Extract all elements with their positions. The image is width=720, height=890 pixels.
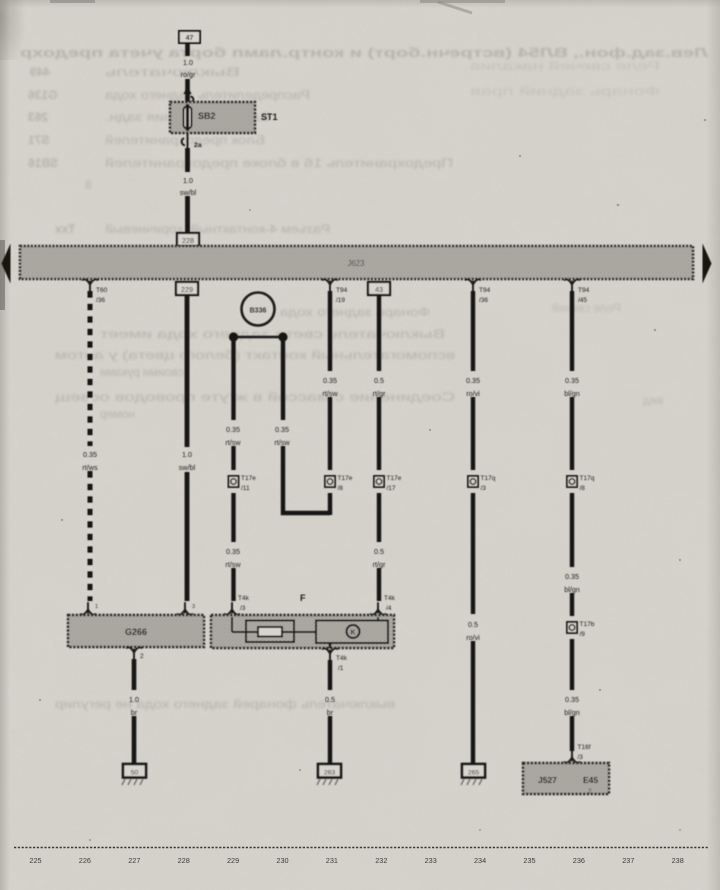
svg-text:T94: T94 — [578, 287, 590, 294]
svg-text:T17e: T17e — [387, 475, 402, 482]
svg-text:0.5: 0.5 — [374, 547, 384, 556]
svg-text:0.5: 0.5 — [468, 620, 478, 629]
svg-text:Предохранитель 16 в блоке пред: Предохранитель 16 в блоке предохранителе… — [105, 156, 453, 170]
svg-text:вспомогательный контакт (белог: вспомогательный контакт (белого цвета) у… — [55, 348, 455, 362]
svg-text:43: 43 — [375, 285, 383, 294]
svg-text:0.35: 0.35 — [226, 425, 240, 434]
svg-text:rt/gr: rt/gr — [373, 560, 386, 569]
svg-text:/36: /36 — [96, 297, 105, 304]
svg-text:50: 50 — [131, 770, 139, 777]
svg-text:/45: /45 — [578, 297, 587, 304]
svg-text:226: 226 — [79, 856, 91, 865]
svg-text:0.35: 0.35 — [466, 376, 480, 385]
svg-text:SB2: SB2 — [198, 111, 216, 121]
svg-text:T60: T60 — [96, 287, 108, 294]
svg-text:1.0: 1.0 — [182, 450, 192, 459]
svg-text:Реле свечей накалив: Реле свечей накалив — [470, 59, 660, 73]
svg-text:Выключатель: Выключатель — [105, 65, 240, 79]
svg-text:225: 225 — [29, 856, 41, 865]
svg-text:bl/gn: bl/gn — [564, 585, 580, 594]
svg-text:263: 263 — [324, 770, 336, 777]
svg-text:237: 237 — [622, 856, 634, 865]
svg-text:Распределитель заднего хода: Распределитель заднего хода — [105, 88, 310, 102]
svg-text:номер: номер — [100, 407, 135, 421]
svg-text:G136: G136 — [28, 88, 58, 102]
svg-text:J527: J527 — [538, 775, 557, 785]
svg-text:Соединение с массой в жгуте пр: Соединение с массой в жгуте проводов осв… — [55, 390, 455, 404]
svg-text:ro/vi: ro/vi — [466, 633, 480, 642]
svg-text:263: 263 — [28, 110, 48, 124]
svg-text:228: 228 — [178, 856, 190, 865]
svg-text:S71: S71 — [28, 133, 50, 147]
svg-text:своими руками: своими руками — [100, 365, 184, 379]
svg-text:rt/sw: rt/sw — [322, 389, 338, 398]
svg-text:ro/vi: ro/vi — [466, 389, 480, 398]
svg-text:T17e: T17e — [241, 475, 256, 482]
svg-text:229: 229 — [181, 285, 193, 294]
svg-text:229: 229 — [227, 856, 239, 865]
svg-text:47: 47 — [186, 35, 194, 42]
svg-text:/3: /3 — [240, 605, 246, 612]
svg-text:238: 238 — [672, 856, 684, 865]
svg-text:232: 232 — [375, 856, 387, 865]
svg-text:Фонарь задний прав: Фонарь задний прав — [470, 84, 660, 98]
svg-text:F: F — [300, 593, 306, 603]
svg-text:T94: T94 — [479, 287, 491, 294]
svg-text:0.35: 0.35 — [323, 376, 337, 385]
svg-text:265: 265 — [468, 770, 480, 777]
svg-text:T4k: T4k — [384, 595, 396, 602]
svg-text:T17q: T17q — [481, 475, 496, 482]
svg-text:ro/gr: ro/gr — [181, 70, 196, 79]
svg-text:449: 449 — [30, 65, 50, 79]
svg-text:/36: /36 — [479, 297, 488, 304]
svg-text:/17: /17 — [387, 485, 396, 492]
svg-text:0.35: 0.35 — [565, 572, 579, 581]
svg-text:0.5: 0.5 — [374, 376, 384, 385]
svg-text:/11: /11 — [241, 485, 250, 492]
svg-text:G266: G266 — [125, 627, 147, 637]
svg-text:1: 1 — [95, 604, 98, 610]
svg-text:/1: /1 — [338, 665, 344, 672]
svg-text:2a: 2a — [194, 142, 202, 149]
svg-text:rt/sw: rt/sw — [274, 438, 290, 447]
svg-text:Выключатель света заднего хода: Выключатель света заднего хода имеет — [99, 327, 445, 341]
svg-text:B336: B336 — [250, 308, 267, 315]
svg-text:227: 227 — [128, 856, 140, 865]
svg-text:T4k: T4k — [238, 595, 250, 602]
svg-text:0.35: 0.35 — [565, 695, 579, 704]
svg-text:2: 2 — [140, 653, 144, 660]
svg-text:T17b: T17b — [580, 621, 595, 628]
svg-text:0.35: 0.35 — [565, 376, 579, 385]
svg-text:rt/sw: rt/sw — [225, 560, 241, 569]
svg-text:Фонарь заднего хода: Фонарь заднего хода — [280, 305, 430, 319]
svg-text:T94: T94 — [336, 287, 348, 294]
svg-text:вид: вид — [643, 393, 663, 407]
svg-text:выключатель фонарей заднего хо: выключатель фонарей заднего хода не регу… — [55, 697, 395, 711]
svg-text:/3: /3 — [578, 754, 584, 761]
svg-text:/19: /19 — [336, 297, 345, 304]
svg-text:bl/gn: bl/gn — [564, 389, 580, 398]
svg-text:Лев.зад.фон., ВЛ54 (встречн.бо: Лев.зад.фон., ВЛ54 (встречн.борт) и конт… — [19, 46, 708, 60]
svg-text:/3: /3 — [481, 485, 487, 492]
svg-text:T17q: T17q — [580, 475, 595, 482]
svg-text:228: 228 — [182, 236, 194, 245]
svg-text:8: 8 — [85, 178, 92, 192]
svg-text:/8: /8 — [580, 485, 586, 492]
svg-text:3: 3 — [192, 604, 195, 610]
svg-text:K: K — [350, 630, 355, 637]
svg-text:236: 236 — [573, 856, 585, 865]
svg-text:230: 230 — [276, 856, 288, 865]
svg-text:0.35: 0.35 — [83, 450, 97, 459]
svg-text:/9: /9 — [580, 631, 586, 638]
svg-text:1.0: 1.0 — [183, 58, 193, 67]
svg-text:0.5: 0.5 — [325, 695, 335, 704]
svg-text:2: 2 — [588, 788, 592, 795]
svg-text:235: 235 — [523, 856, 535, 865]
svg-text:T4k: T4k — [336, 655, 348, 662]
svg-text:1.0: 1.0 — [183, 176, 193, 185]
svg-text:0.35: 0.35 — [226, 547, 240, 556]
svg-text:0.35: 0.35 — [275, 425, 289, 434]
svg-text:Тхх: Тхх — [55, 222, 76, 236]
svg-text:ST1: ST1 — [261, 112, 278, 122]
svg-text:sw/bl: sw/bl — [180, 188, 197, 197]
svg-text:br: br — [327, 708, 334, 717]
svg-text:231: 231 — [326, 856, 338, 865]
svg-text:J623: J623 — [348, 259, 365, 268]
svg-text:Разъем 4-контактный, коричневы: Разъем 4-контактный, коричневый — [105, 222, 330, 236]
svg-text:rt/sw: rt/sw — [225, 438, 241, 447]
svg-text:E45: E45 — [583, 775, 598, 785]
svg-text:sw/bl: sw/bl — [179, 463, 196, 472]
svg-text:/4: /4 — [386, 605, 392, 612]
svg-text:1.0: 1.0 — [129, 695, 139, 704]
svg-text:rt/gr: rt/gr — [373, 389, 386, 398]
svg-text:SB16: SB16 — [28, 156, 58, 170]
svg-text:233: 233 — [425, 856, 437, 865]
svg-text:rt/ws: rt/ws — [82, 463, 98, 472]
svg-text:T17e: T17e — [338, 475, 353, 482]
svg-text:234: 234 — [474, 856, 486, 865]
svg-text:/8: /8 — [338, 485, 344, 492]
svg-text:T16f: T16f — [578, 744, 591, 751]
svg-text:bl/gn: bl/gn — [564, 708, 580, 717]
svg-text:br: br — [131, 708, 138, 717]
